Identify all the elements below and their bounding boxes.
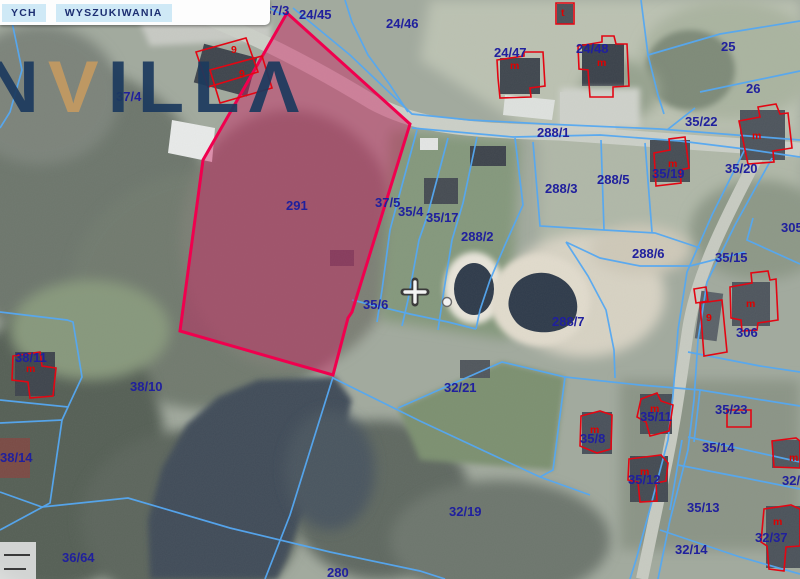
scale-line <box>4 554 30 556</box>
highlighted-parcel-291[interactable] <box>180 13 410 375</box>
toolbar-button-tab-partial[interactable]: YCH <box>2 4 46 22</box>
toolbar: YCHWYSZUKIWANIA <box>0 0 270 25</box>
map-canvas[interactable]: 37/324/4524/4624/4724/48252635/22288/137… <box>0 0 800 579</box>
scale-widget[interactable] <box>0 542 36 579</box>
parcel-boundary-lines <box>0 0 800 579</box>
toolbar-button-tab-search[interactable]: WYSZUKIWANIA <box>56 4 172 22</box>
point-marker-icon <box>443 298 452 307</box>
building-outlines <box>12 3 800 571</box>
scale-line <box>4 568 26 570</box>
cadastral-overlay <box>0 0 800 579</box>
